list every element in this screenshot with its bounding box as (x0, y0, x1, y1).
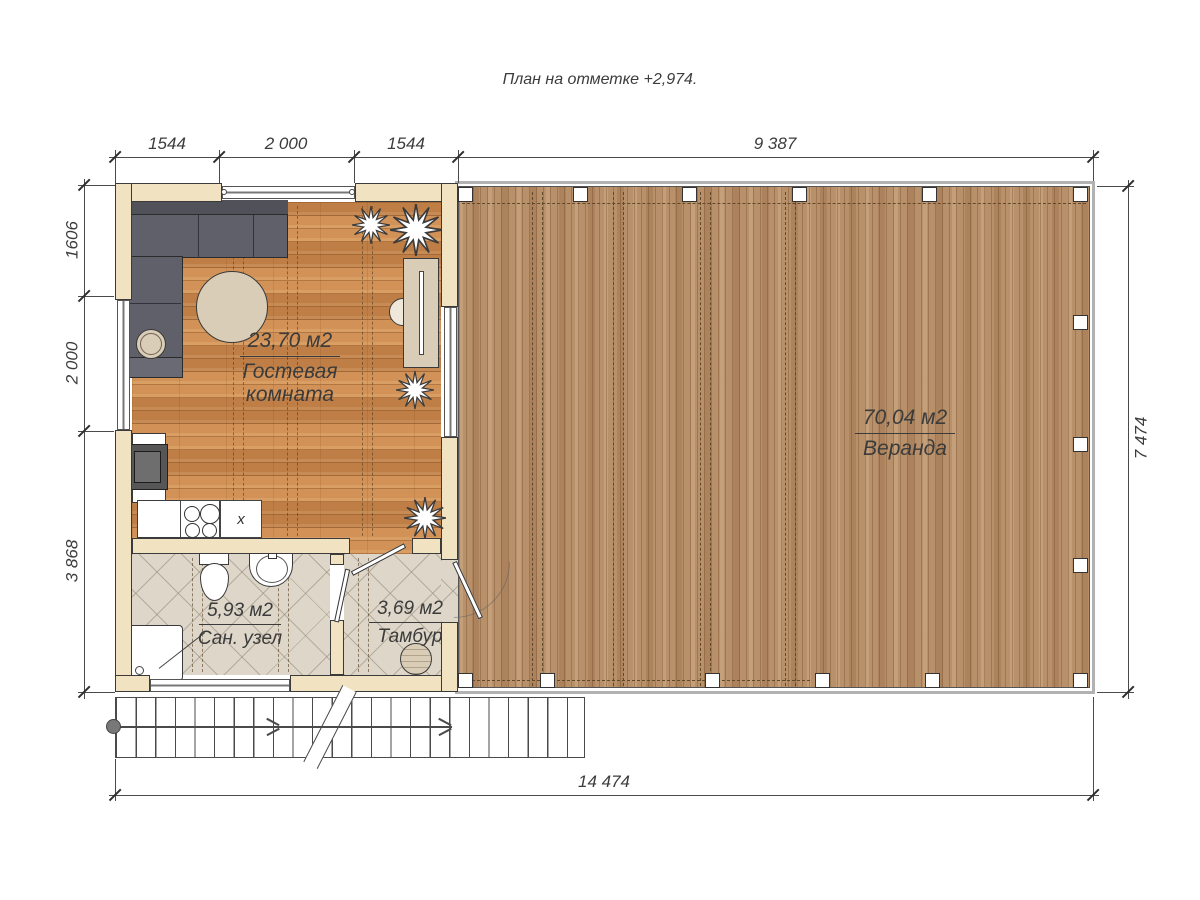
window-end (349, 189, 355, 195)
stool (136, 329, 166, 359)
shower-drain (135, 666, 144, 675)
wall (115, 183, 132, 300)
room-area: 70,04 м2 (855, 406, 955, 434)
wall (441, 183, 458, 307)
room-name: Гостевая комната (200, 360, 380, 407)
dim-label-top-2: 2 000 (265, 135, 308, 152)
plant-icon (390, 204, 442, 256)
desk-detail (419, 271, 424, 355)
veranda-post (792, 187, 807, 202)
plant-icon (404, 497, 446, 539)
veranda-post (682, 187, 697, 202)
veranda-post (458, 187, 473, 202)
burner (200, 504, 220, 524)
dim-label-top-3: 1544 (387, 135, 425, 152)
room-name: Веранда (820, 437, 990, 461)
veranda-post (1073, 437, 1088, 452)
dimension-line (84, 179, 85, 699)
room-area: 3,69 м2 (369, 598, 451, 623)
veranda-post (540, 673, 555, 688)
dim-label-left-1: 1606 (64, 221, 81, 259)
window (117, 300, 130, 430)
beam-dashed-line (623, 192, 624, 686)
interior-wall (412, 538, 441, 554)
window (222, 186, 355, 199)
dimension-line (109, 157, 1099, 158)
roof-dashed-line (462, 680, 810, 681)
roof-dashed-line (462, 203, 1086, 204)
dim-label-top-1: 1544 (148, 135, 186, 152)
sink-basin (256, 555, 288, 583)
veranda-post (925, 673, 940, 688)
window (444, 307, 457, 437)
veranda-post (705, 673, 720, 688)
room-area: 5,93 м2 (199, 600, 281, 625)
beam-dashed-line (785, 192, 786, 686)
burner (184, 506, 200, 522)
wall (115, 675, 150, 692)
interior-wall (132, 538, 350, 554)
sofa-armrest (129, 357, 182, 377)
stove-appliance (127, 444, 168, 490)
stair-direction-line (113, 726, 452, 728)
interior-wall (330, 554, 344, 565)
room-name: Сан. узел (160, 628, 320, 649)
dim-label-top-4: 9 387 (754, 135, 797, 152)
stair-start-marker (106, 719, 121, 734)
sofa-cushion-line (198, 215, 199, 258)
desk (403, 258, 439, 368)
burner (202, 523, 217, 538)
dimension-line (1128, 180, 1129, 699)
sink-unit: x (220, 500, 262, 538)
beam-dashed-line (613, 192, 614, 686)
veranda-post (1073, 187, 1088, 202)
room-name: Тамбур (342, 626, 478, 647)
extension-line (1093, 697, 1094, 801)
beam-dashed-line (795, 192, 796, 686)
plant-icon (396, 371, 434, 409)
room-label-bath: 5,93 м2 Сан. узел (160, 600, 320, 650)
dim-label-left-3: 3 868 (64, 540, 81, 583)
window (150, 679, 290, 692)
veranda-post (1073, 558, 1088, 573)
veranda-deck (458, 186, 1090, 688)
wall (290, 675, 458, 692)
cooktop (180, 500, 220, 538)
beam-dashed-line (700, 192, 701, 686)
room-label-veranda: 70,04 м2 Веранда (820, 406, 990, 460)
plan-title: План на отметке +2,974. (450, 72, 750, 88)
burner (185, 523, 200, 538)
beam-dashed-line (532, 192, 533, 686)
window-end (221, 189, 227, 195)
sofa-cushion-line (130, 303, 181, 304)
veranda-post (1073, 673, 1088, 688)
wall (115, 430, 132, 692)
beam-dashed-line (710, 192, 711, 686)
veranda-post (458, 673, 473, 688)
dim-label-right-1: 7 474 (1133, 417, 1150, 460)
dim-label-bottom-1: 14 474 (578, 773, 630, 790)
beam-dashed-line (542, 192, 543, 686)
veranda-post (815, 673, 830, 688)
veranda-post (1073, 315, 1088, 330)
dimension-line (109, 795, 1099, 796)
veranda-post (573, 187, 588, 202)
dim-label-left-2: 2 000 (64, 342, 81, 385)
tambour-stool (400, 643, 432, 675)
floor-plan-canvas: План на отметке +2,974. (0, 0, 1200, 900)
room-label-guest: 23,70 м2 Гостевая комната (200, 329, 380, 407)
veranda-post (922, 187, 937, 202)
sofa-cushion-line (253, 215, 254, 258)
plant-icon (352, 206, 390, 244)
stool-ring (140, 333, 162, 355)
stove-inner (134, 451, 161, 483)
sofa-backrest (128, 200, 288, 215)
room-label-tambour: 3,69 м2 Тамбур (342, 598, 478, 648)
room-area: 23,70 м2 (240, 329, 340, 357)
